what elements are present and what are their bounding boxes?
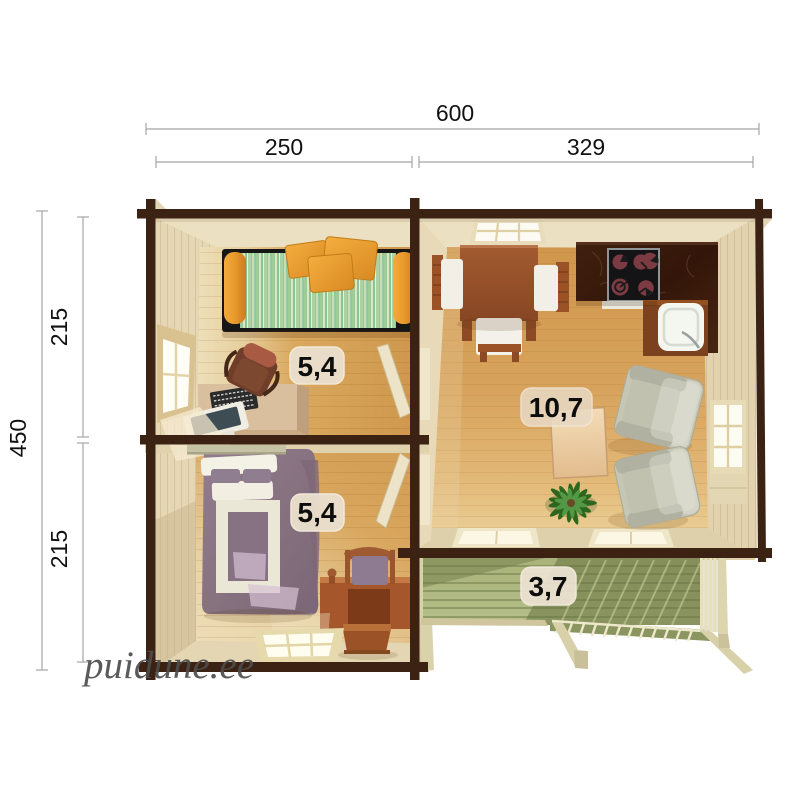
svg-text:215: 215	[46, 530, 72, 568]
svg-text:215: 215	[46, 308, 72, 346]
svg-text:329: 329	[567, 134, 605, 160]
svg-text:250: 250	[265, 134, 303, 160]
svg-text:10,7: 10,7	[529, 392, 584, 423]
svg-text:5,4: 5,4	[298, 497, 337, 528]
svg-text:3,7: 3,7	[529, 571, 568, 602]
svg-text:600: 600	[436, 100, 474, 126]
svg-text:5,4: 5,4	[298, 351, 337, 382]
svg-text:450: 450	[5, 419, 31, 457]
svg-text:puidune.ee: puidune.ee	[81, 644, 254, 687]
